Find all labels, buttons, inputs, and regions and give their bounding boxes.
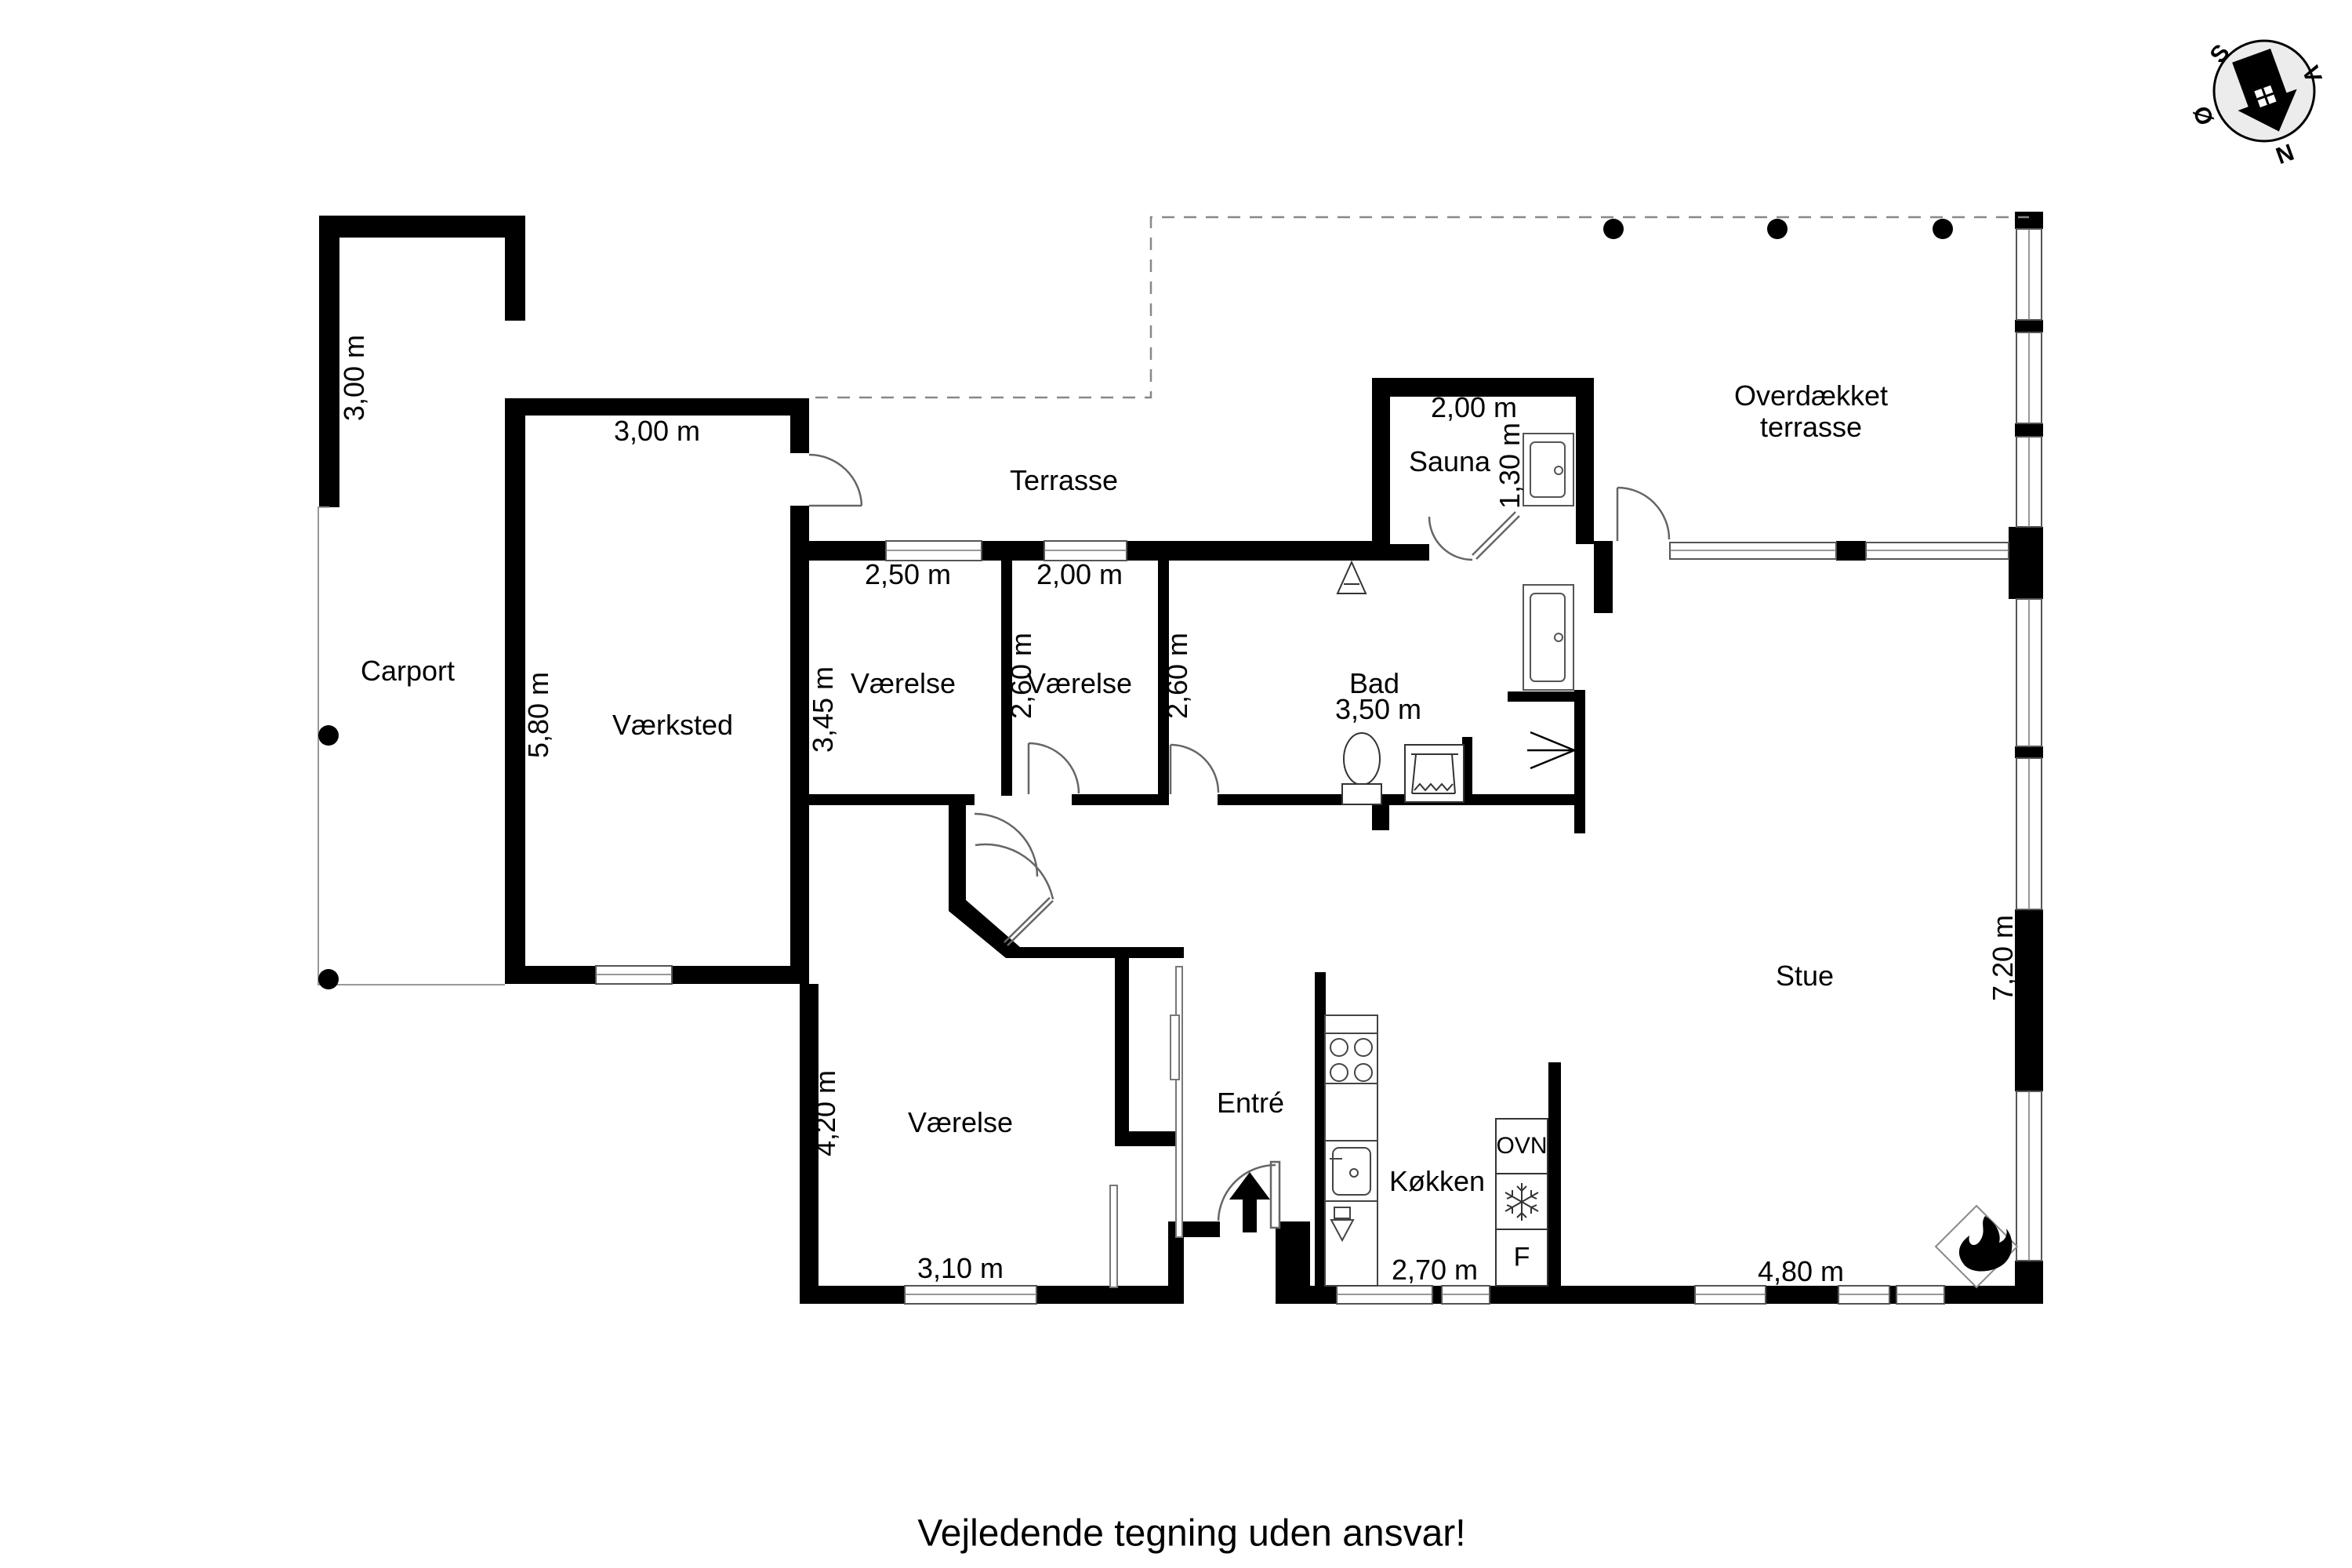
- door-direction-arrow-icon: [1527, 732, 1574, 768]
- sauna-depth: 1,30 m: [1494, 423, 1526, 509]
- sauna-width: 2,00 m: [1431, 391, 1517, 424]
- terrace-walls: [1836, 212, 2043, 1304]
- terrasse-label: Terrasse: [1010, 464, 1118, 497]
- stue-height: 7,20 m: [1987, 915, 2020, 1001]
- vaerelse3-width: 3,10 m: [917, 1252, 1004, 1285]
- vent-triangle-icon: [1338, 562, 1366, 593]
- overdaekket-line1: Overdækket: [1734, 379, 1888, 412]
- vaerelse2-height-right: 2,60 m: [1161, 633, 1194, 719]
- stue-label: Stue: [1776, 960, 1834, 993]
- carport-label: Carport: [361, 655, 455, 688]
- overdaekket-line2: terrasse: [1760, 411, 1862, 444]
- vaerelse1-width: 2,50 m: [865, 558, 951, 591]
- kitchen-sink-icon: [1325, 1141, 1377, 1201]
- floor-plan: 3,00 m Carport 3,00 m 5,80 m Værksted Te…: [0, 0, 2352, 1568]
- carport-side-dimension: 3,00 m: [338, 335, 371, 421]
- fireplace-icon: [1936, 1206, 2017, 1287]
- carport-outline: [318, 507, 505, 985]
- floor-plan-geometry: [0, 0, 2352, 1568]
- vaerksted-width: 3,00 m: [614, 415, 700, 448]
- fridge-label: F: [1514, 1243, 1530, 1273]
- vaerelse2-label: Værelse: [1027, 667, 1132, 700]
- vaerelse2-width: 2,00 m: [1036, 558, 1123, 591]
- vaerksted-label: Værksted: [612, 709, 733, 742]
- entre-label: Entré: [1217, 1087, 1284, 1120]
- sauna-label: Sauna: [1409, 445, 1490, 478]
- terrace-posts: [1603, 219, 1953, 239]
- covered-area-dashed-outline: [815, 217, 2029, 397]
- bad-width: 3,50 m: [1335, 693, 1421, 726]
- carport-posts: [318, 725, 339, 989]
- koekken-label: Køkken: [1389, 1165, 1485, 1198]
- stue-width: 4,80 m: [1758, 1255, 1844, 1288]
- vaerelse1-height: 3,45 m: [807, 666, 840, 753]
- vaerksted-height: 5,80 m: [522, 672, 555, 758]
- disclaimer-text: Vejledende tegning uden ansvar!: [917, 1512, 1465, 1555]
- shower-cabins: [1523, 434, 1573, 690]
- koekken-width: 2,70 m: [1392, 1254, 1478, 1287]
- toilet-icon: [1342, 733, 1381, 804]
- oven-label: OVN: [1496, 1133, 1547, 1160]
- stove-icon: [1325, 1033, 1377, 1083]
- vaerelse3-height: 4,20 m: [809, 1070, 842, 1156]
- vaerelse3-label: Værelse: [908, 1106, 1013, 1139]
- vaerelse1-label: Værelse: [851, 667, 956, 700]
- bathroom-sink-icon: [1405, 745, 1464, 802]
